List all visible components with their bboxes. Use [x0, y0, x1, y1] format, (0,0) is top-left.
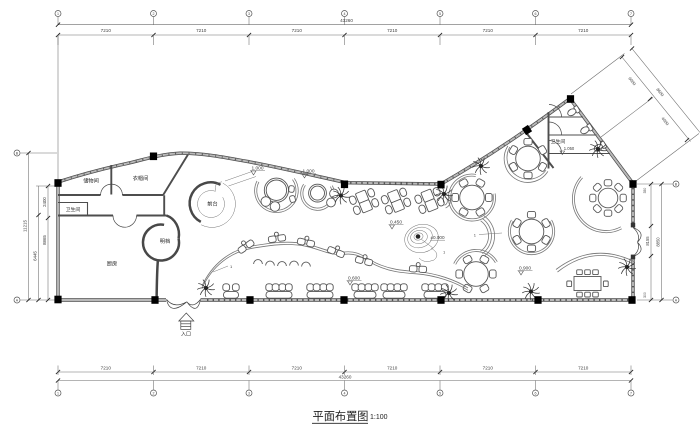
- svg-text:衣帽间: 衣帽间: [133, 174, 149, 182]
- svg-text:4: 4: [344, 12, 346, 16]
- svg-text:6: 6: [535, 12, 537, 16]
- svg-text:350: 350: [643, 188, 647, 194]
- svg-text:明档: 明档: [160, 237, 170, 245]
- svg-text:前台: 前台: [207, 200, 217, 208]
- svg-text:7210: 7210: [483, 365, 494, 370]
- svg-text:11215: 11215: [23, 220, 28, 232]
- svg-text:7210: 7210: [387, 28, 398, 33]
- svg-text:7210: 7210: [196, 28, 207, 33]
- svg-text:8155: 8155: [645, 236, 650, 246]
- svg-text:6445: 6445: [33, 251, 38, 261]
- svg-text:300: 300: [643, 292, 647, 298]
- svg-text:储物间: 储物间: [83, 176, 99, 184]
- svg-text:2: 2: [153, 391, 155, 395]
- svg-text:入口: 入口: [181, 332, 191, 338]
- svg-text:1: 1: [57, 12, 59, 16]
- svg-text:6: 6: [535, 391, 537, 395]
- svg-text:7210: 7210: [101, 365, 112, 370]
- svg-text:±0.000: ±0.000: [430, 235, 444, 240]
- svg-text:7210: 7210: [292, 365, 303, 370]
- svg-text:厨房: 厨房: [107, 260, 117, 268]
- svg-text:8850: 8850: [655, 237, 660, 247]
- svg-text:4: 4: [344, 391, 346, 395]
- svg-text:2: 2: [153, 12, 155, 16]
- svg-text:2400: 2400: [42, 197, 47, 207]
- svg-text:平面布置图: 平面布置图: [313, 410, 369, 423]
- svg-text:5: 5: [439, 391, 441, 395]
- svg-text:43260: 43260: [339, 374, 352, 379]
- svg-text:7: 7: [630, 391, 632, 395]
- svg-text:7210: 7210: [483, 28, 494, 33]
- svg-text:卫生间: 卫生间: [551, 138, 566, 145]
- svg-text:1:100: 1:100: [370, 414, 388, 421]
- svg-text:1: 1: [57, 391, 59, 395]
- svg-text:7: 7: [630, 12, 632, 16]
- svg-text:8865: 8865: [42, 235, 47, 245]
- svg-text:5: 5: [439, 12, 441, 16]
- svg-text:7210: 7210: [196, 365, 207, 370]
- svg-text:3: 3: [248, 12, 250, 16]
- svg-text:卫生间: 卫生间: [66, 206, 81, 213]
- svg-text:7210: 7210: [101, 28, 112, 33]
- svg-text:43260: 43260: [340, 18, 353, 23]
- svg-text:7210: 7210: [578, 365, 589, 370]
- svg-text:7210: 7210: [387, 365, 398, 370]
- svg-text:7210: 7210: [578, 28, 589, 33]
- svg-text:3: 3: [248, 391, 250, 395]
- svg-text:1.050: 1.050: [564, 146, 575, 151]
- svg-text:7210: 7210: [292, 28, 303, 33]
